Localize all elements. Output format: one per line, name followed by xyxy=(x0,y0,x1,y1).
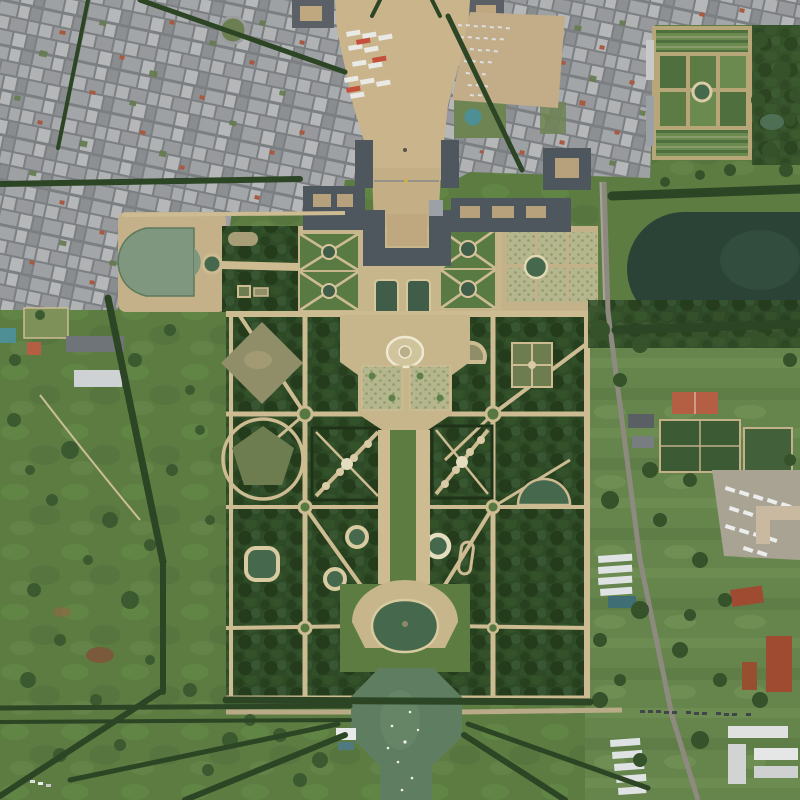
field-tree xyxy=(713,673,727,687)
park-tree xyxy=(312,752,328,768)
bottom-right-complex xyxy=(728,726,798,784)
boat xyxy=(403,740,406,743)
field-tree xyxy=(691,731,709,749)
grove-basin xyxy=(254,288,268,296)
roadside-car xyxy=(640,710,645,713)
orangerie-central-pool xyxy=(525,256,547,278)
quincunx-node xyxy=(452,466,460,474)
parterre-pool-dot xyxy=(369,373,376,380)
woodland-tree xyxy=(752,32,768,48)
barracks-building xyxy=(728,744,746,784)
parked-vehicle xyxy=(38,782,43,785)
formal-garden-square xyxy=(24,308,68,338)
parterre-pool-dot xyxy=(437,395,444,402)
field-tree xyxy=(783,353,797,367)
woodland-tree xyxy=(762,142,778,158)
quincunx-node xyxy=(322,482,330,490)
long-white-building xyxy=(74,370,122,387)
field-tree xyxy=(684,609,696,621)
roadside-car xyxy=(648,710,653,713)
boat xyxy=(387,747,390,750)
woodland-tree xyxy=(751,93,765,107)
roadside-car xyxy=(724,713,729,716)
quincunx-node xyxy=(336,468,344,476)
rond-point xyxy=(298,407,312,421)
potager-west-building xyxy=(646,40,654,80)
flora-fountain xyxy=(427,535,449,557)
field-tree xyxy=(752,332,768,348)
park-tree xyxy=(35,310,45,320)
marble-court xyxy=(387,214,427,246)
broderie-square xyxy=(569,268,597,302)
neptune-basin xyxy=(118,228,194,296)
parked-vehicle xyxy=(30,780,35,783)
boat xyxy=(391,725,394,728)
park-tree xyxy=(61,441,79,459)
latona-parterre-east xyxy=(410,366,450,410)
tree-lined-avenue xyxy=(616,324,800,330)
park-tree xyxy=(144,539,156,551)
barracks-building xyxy=(754,766,798,778)
field-tree xyxy=(633,753,647,767)
broderie-square xyxy=(569,232,597,264)
field-tree xyxy=(718,593,732,607)
field-tree xyxy=(752,692,768,708)
north-wing-courtyard xyxy=(337,194,353,207)
south-parterre-pool-1 xyxy=(460,241,476,257)
potager-crop-strip-south xyxy=(656,130,748,156)
apollo-chariot-group xyxy=(402,621,408,627)
park-tree xyxy=(164,324,176,336)
equestrian-statue xyxy=(403,148,407,152)
park-tree xyxy=(46,494,58,506)
latona-fountain-tiers xyxy=(399,346,411,358)
tree-lined-avenue xyxy=(0,720,350,722)
potager-crop-strip-north xyxy=(656,30,748,52)
royal-chapel-roof xyxy=(429,200,443,216)
roadside-car xyxy=(732,713,737,716)
potager-plot xyxy=(660,92,686,126)
golden-gate xyxy=(404,179,407,182)
field-tree xyxy=(613,373,627,387)
ministers-wing-north xyxy=(355,140,373,188)
rond-point xyxy=(486,407,500,421)
woodland-tree xyxy=(724,164,736,176)
roadside-car xyxy=(672,711,677,714)
field-tree xyxy=(592,692,608,708)
park-tree xyxy=(83,555,93,565)
field-tree xyxy=(683,473,697,487)
cross-road-east xyxy=(462,710,622,712)
field-tree xyxy=(642,462,658,478)
farm-shed xyxy=(628,414,654,428)
woodland-tree xyxy=(773,61,791,79)
roadside-car xyxy=(746,713,751,716)
field-tree xyxy=(614,674,626,686)
boat xyxy=(411,777,414,780)
park-tree xyxy=(195,425,205,435)
field-tree xyxy=(590,320,610,340)
dirt-patch-small xyxy=(53,607,71,617)
potager-plot xyxy=(720,56,746,88)
park-tree xyxy=(121,591,139,609)
rond-point xyxy=(299,501,311,513)
allee-deau-path xyxy=(221,265,300,267)
parterre-pool-dot xyxy=(389,395,396,402)
rond-point xyxy=(488,623,498,633)
park-tree xyxy=(7,413,21,427)
barracks-building xyxy=(754,748,798,760)
field-tree xyxy=(672,642,688,658)
potager-plot xyxy=(720,92,746,126)
south-wing-courtyard xyxy=(460,206,480,218)
barracks-building xyxy=(728,726,788,738)
satellite-image-versailles xyxy=(0,0,800,800)
dirt-patch xyxy=(86,647,114,663)
potager-plot xyxy=(660,56,686,88)
square-basin-fountain xyxy=(246,548,278,580)
park-tree xyxy=(27,583,41,597)
dragon-basin xyxy=(203,255,221,273)
south-wing-courtyard xyxy=(492,206,514,218)
queens-grove-center xyxy=(528,361,536,369)
quincunx-node xyxy=(364,440,372,448)
swimming-pool xyxy=(0,328,16,343)
park-tree xyxy=(102,512,118,528)
teal-roof-greenhouse xyxy=(608,596,636,608)
park-tree xyxy=(202,764,214,776)
north-wing xyxy=(303,186,365,230)
boat xyxy=(417,729,419,731)
woodland-tree xyxy=(695,170,705,180)
wild-garden-pond xyxy=(760,114,784,130)
park-tree xyxy=(128,353,142,367)
grand-commun-courtyard xyxy=(555,158,579,178)
quincunx-node xyxy=(477,436,485,444)
rond-point xyxy=(487,501,499,513)
quincunx-node xyxy=(441,480,449,488)
boat xyxy=(401,789,404,792)
park-tree xyxy=(185,385,195,395)
rond-point xyxy=(299,622,311,634)
trois-fontaines-clearing xyxy=(228,232,258,246)
potager-west-building xyxy=(646,96,654,146)
field-tree xyxy=(784,454,796,466)
park-tree xyxy=(25,465,35,475)
woodland-tree xyxy=(660,177,670,187)
roadside-car xyxy=(702,712,707,715)
grand-canal xyxy=(380,764,432,800)
field-tree xyxy=(601,491,619,509)
grande-ecurie-courtyard xyxy=(300,6,322,21)
park-tree xyxy=(145,655,155,665)
roadside-car xyxy=(686,711,691,714)
swiss-lake-sheen xyxy=(720,230,800,290)
quincunx-node xyxy=(350,454,358,462)
tapis-vert-path-east xyxy=(416,430,430,588)
red-barn-long xyxy=(766,636,792,692)
potager-central-pool xyxy=(693,83,711,101)
garden-north-edge-path xyxy=(122,213,345,215)
roadside-car xyxy=(656,710,661,713)
park-tree xyxy=(166,464,178,476)
roadside-car xyxy=(694,712,699,715)
tapis-vert-path-west xyxy=(378,430,390,588)
dirt-clearing-patch xyxy=(244,351,272,369)
park-tree xyxy=(54,634,66,646)
north-wing-courtyard xyxy=(313,194,331,207)
town-teal-basin xyxy=(465,109,482,126)
park-tree xyxy=(9,354,21,366)
field-tree xyxy=(593,633,607,647)
little-venice-teal-roof xyxy=(338,742,354,750)
woodland-tree xyxy=(779,163,793,177)
roadside-car xyxy=(664,711,669,714)
park-tree xyxy=(20,672,36,688)
woodland-tree xyxy=(784,114,796,126)
boat xyxy=(397,761,400,764)
arc-de-triomphe-grove xyxy=(238,286,250,297)
tree-lined-avenue xyxy=(0,706,350,708)
quincunx-node xyxy=(456,456,468,468)
north-parterre-pool-1 xyxy=(322,245,336,259)
red-barn-small xyxy=(742,662,757,690)
south-wing-courtyard xyxy=(526,206,546,218)
field-tree xyxy=(692,552,708,568)
latona-parterre-west xyxy=(362,366,402,410)
park-tree xyxy=(90,694,102,706)
field-tree xyxy=(632,337,648,353)
parterre-pool-dot xyxy=(417,373,424,380)
farm-shed xyxy=(632,436,654,448)
field-tree xyxy=(631,601,649,619)
walled-garden-east xyxy=(744,428,792,474)
parked-vehicle xyxy=(46,784,51,787)
park-tree xyxy=(114,739,126,751)
park-tree xyxy=(293,773,307,787)
quincunx-node xyxy=(466,448,474,456)
enceladus-fountain xyxy=(347,527,367,547)
aerial-scene xyxy=(0,0,800,800)
south-parterre-pool-2 xyxy=(460,281,476,297)
tennis-court-town xyxy=(27,342,41,355)
north-parterre-pool-2 xyxy=(322,284,336,298)
field-tree xyxy=(653,513,667,527)
boat xyxy=(409,711,412,714)
ministers-wing-south xyxy=(441,140,459,188)
park-tree xyxy=(205,515,215,525)
tapis-vert-lawn xyxy=(390,430,416,588)
roadside-car xyxy=(716,712,721,715)
park-tree xyxy=(183,683,197,697)
tree-lined-avenue xyxy=(226,700,590,702)
